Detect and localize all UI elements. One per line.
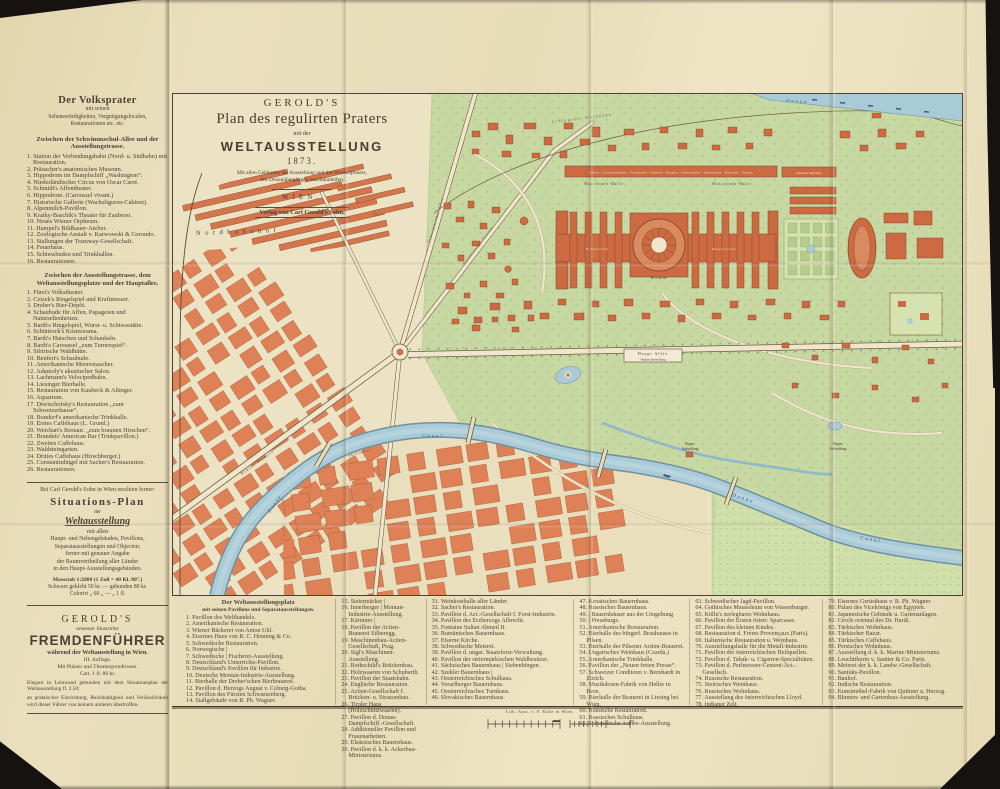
list-item: 1. Station der Verbindungsbahn (Nord- u.…	[27, 154, 168, 167]
building	[788, 265, 797, 275]
building	[528, 315, 534, 321]
building	[696, 299, 704, 305]
list-item: 16. Restaurationen.	[27, 259, 168, 266]
list-item: 27. Pavillon d. Donau-Dampfschiff.-Gesel…	[341, 715, 420, 728]
building	[532, 476, 551, 495]
building	[801, 223, 810, 233]
building	[842, 343, 850, 348]
building	[516, 568, 535, 587]
building	[492, 317, 498, 322]
title-caption-1: Mit allen Gebäuden der Ausstellung und d…	[186, 170, 418, 177]
sidebar-text-column: Der Volksprater mit seinen Sehenswürdigk…	[27, 95, 168, 714]
list-item: 29. Elsässisches Bauernhaus.	[341, 740, 420, 746]
building	[473, 485, 500, 506]
building	[784, 313, 791, 319]
building	[456, 217, 464, 222]
building	[496, 293, 504, 298]
building	[490, 303, 500, 310]
building	[801, 237, 810, 247]
building	[766, 299, 775, 305]
building	[508, 315, 515, 321]
japanese-garden	[890, 293, 942, 335]
building	[838, 301, 845, 307]
building	[513, 546, 536, 566]
building	[802, 301, 810, 308]
section1-list: 1. Station der Verbindungsbahn (Nord- u.…	[27, 154, 168, 265]
guide-sub: neuester illustrirter	[27, 626, 168, 632]
photo-stage: Donau Italien · Grossbritannien · Frankr…	[0, 0, 1000, 789]
ad-weltausstellung: Weltausstellung	[27, 516, 168, 527]
building	[592, 301, 599, 307]
building	[812, 355, 818, 360]
building	[354, 505, 373, 524]
title-divider	[272, 189, 332, 190]
building	[427, 582, 446, 596]
list-item: 26. Restaurationen.	[27, 467, 168, 474]
photo-edge-right-lower	[995, 380, 1000, 740]
building	[328, 531, 347, 550]
building	[568, 515, 587, 534]
section1-title: Zwischen der Schwimmschul-Allee und der …	[27, 136, 168, 151]
hauptallee-label-box: Haupt Allee Wagen Aufstellung	[624, 349, 682, 362]
list-item: mit allen	[27, 529, 168, 537]
building	[608, 145, 616, 151]
building	[660, 301, 670, 307]
legend-header-1: Der Weltausstellungsplatz	[186, 599, 330, 607]
volksprater-sub2: Sehenswürdigkeiten, Vergnügungslocalen,	[27, 114, 168, 122]
building	[813, 237, 822, 247]
building	[469, 464, 488, 483]
building	[295, 513, 322, 534]
building	[546, 562, 573, 583]
building	[502, 151, 511, 157]
building	[801, 251, 810, 261]
building	[752, 212, 759, 288]
title-year: 1873.	[186, 156, 418, 166]
list-item: 4. Schaubude für Affen, Papageien und Na…	[27, 310, 168, 323]
building	[483, 550, 510, 571]
frankreich-label: Frankreich	[586, 247, 608, 251]
scale-bar-meter	[570, 720, 634, 729]
list-item: 30. Pavillon d. k. k. Ackerbau-Ministeri…	[341, 747, 420, 760]
legend-column-1: Der Weltausstellungsplatz mit seinen Pav…	[186, 599, 335, 705]
building	[450, 533, 473, 553]
building	[347, 460, 374, 481]
building	[506, 503, 525, 522]
list-item: 46. Slovakisches Bauernhaus.	[432, 695, 569, 701]
legend-column-3: 31. Weinkosthalle aller Länder.32. Sache…	[426, 599, 574, 705]
building	[472, 131, 480, 137]
building	[712, 145, 720, 150]
building	[605, 554, 624, 573]
list-item: 54. Ungarisches Weinhaus (Czarda.)	[579, 650, 684, 656]
building	[872, 385, 878, 390]
building	[424, 560, 447, 580]
machine-hall-countries-label: Italien · Grossbritannien · Frankreich ·…	[589, 170, 753, 174]
volksprater-title: Der Volksprater	[27, 95, 168, 106]
building	[565, 493, 588, 513]
building	[509, 523, 536, 544]
building	[524, 123, 536, 129]
building	[558, 299, 566, 305]
building	[474, 317, 482, 323]
building	[737, 212, 744, 288]
building	[813, 223, 822, 233]
legend-column-2: 15. Steiermärker |16. Innerberger | Mont…	[335, 599, 425, 705]
guide-para1: Elegant in Leinwand gebunden mit dem Sit…	[27, 680, 168, 693]
building	[788, 223, 797, 233]
building	[624, 129, 634, 135]
building	[826, 237, 835, 247]
map-title: Plan des regulirten Praters	[186, 111, 418, 128]
building	[792, 383, 798, 388]
weltausstellung-title: WELTAUSSTELLUNG	[186, 139, 418, 154]
building	[436, 446, 463, 467]
canal-label-1: Canal	[422, 434, 444, 440]
building	[896, 143, 906, 149]
building	[826, 223, 835, 233]
list-item: 18. Pavillon der Actien-Brauerei Silbere…	[341, 625, 420, 638]
section2-title: Zwischen der Ausstellungstrasse, dem Wel…	[27, 272, 168, 287]
building	[575, 558, 598, 578]
list-item: 16. Innerberger | Montan-Industrie-Ausst…	[341, 605, 420, 618]
building	[480, 223, 487, 229]
building	[928, 359, 934, 364]
list-item: 56. Pavillon der „Neuen freien Presse“.	[579, 663, 684, 669]
building	[878, 129, 886, 137]
building	[728, 127, 737, 133]
list-item: 68. Restauration d. Frères Provençaux (P…	[695, 631, 817, 637]
volksprater-sub1: mit seinen	[27, 106, 168, 114]
svg-text:Haupt Allee: Haupt Allee	[638, 351, 668, 356]
fremdenfuehrer-ad: GEROLD'S neuester illustrirter FREMDENFÜ…	[27, 605, 168, 715]
building	[608, 315, 616, 321]
building	[476, 507, 499, 527]
building	[598, 509, 625, 530]
building	[446, 283, 454, 289]
building	[331, 551, 358, 572]
building	[801, 265, 810, 275]
list-item: 21. Rothschild's Brückenbau.	[341, 663, 420, 669]
list-item: 52. Bierhalle des bürgerl. Brauhauses in…	[579, 631, 684, 644]
list-item: in den Haupt-Ausstellungsgebäuden.	[27, 566, 168, 574]
building	[452, 319, 459, 324]
svg-text:Wagen-: Wagen-	[684, 442, 696, 446]
building	[542, 542, 561, 561]
building	[466, 442, 489, 462]
building	[788, 237, 797, 247]
section2-list: 1. Fürst's Volkstheater.2. Czizek's Ring…	[27, 290, 168, 473]
list-item: 94. Blumen- und Gartenbau-Ausstellung.	[828, 695, 959, 701]
building	[592, 127, 600, 137]
scale-bar-klafter	[488, 719, 560, 729]
list-item: 20. Sigl's Maschinen-Ausstellung.	[341, 650, 420, 663]
building	[826, 265, 835, 275]
building	[384, 499, 411, 520]
svg-text:Wagen-: Wagen-	[832, 442, 844, 446]
building	[840, 131, 850, 138]
building	[782, 343, 789, 348]
situationsplan-ad: Bei Carl Gerold's Sohn in Wien erschien …	[27, 482, 168, 597]
building	[420, 537, 447, 558]
building	[912, 397, 919, 402]
rotunde-label: Rotunde	[650, 275, 667, 280]
building	[492, 207, 500, 213]
list-item: 17. Diwischofsky's Restauration „zum Sch…	[27, 402, 168, 415]
building	[512, 327, 519, 332]
list-item: Haupt- und Nebengebäuden, Pavillons,	[27, 536, 168, 544]
building	[391, 543, 410, 562]
building	[572, 536, 599, 557]
building	[788, 251, 797, 261]
building	[472, 149, 479, 154]
ad-price-2: Colorirt „ 60 „ — „ 1 fl.	[27, 591, 168, 597]
list-item: 28. Additioneller Pavillon und Frauenarb…	[341, 727, 420, 740]
list-item: 57. Schweizer Conditorei v. Bernhardt in…	[579, 670, 684, 683]
ad-price-1: Schwarz geklebt 50 kr. — gebunden 80 kr.	[27, 584, 168, 590]
legend-items-1: 1. Pavillon des Welthandels.2. Amerikani…	[186, 615, 330, 705]
building	[860, 145, 868, 151]
building	[872, 357, 878, 363]
building	[544, 137, 552, 145]
legend-column-5: 63. Schwedischer Jagd-Pavillon.64. Gothi…	[689, 599, 822, 705]
building	[660, 127, 668, 133]
list-item: 19. Maschinenbau-Actien-Gesellschaft, Pr…	[341, 638, 420, 651]
building	[406, 452, 425, 471]
building	[458, 307, 467, 314]
list-item: 14. Stallgebäude von R. Ph. Wagner.	[186, 698, 330, 704]
building	[480, 281, 487, 287]
building	[570, 212, 577, 288]
building	[468, 201, 474, 208]
building	[813, 251, 822, 261]
list-item: 87. Ausstellung d. k. k. Marine-Minister…	[828, 650, 959, 656]
building	[746, 143, 753, 149]
guide-para2: an praktischer Einrichtung, Reichhaltigk…	[27, 695, 168, 708]
title-city: WIEN.	[186, 193, 418, 201]
list-item: 58. Musikdosen-Fabrik von Heller in Bern…	[579, 682, 684, 695]
building	[486, 572, 509, 592]
building	[524, 301, 532, 309]
ad-der: der	[27, 509, 168, 515]
ad-scale: Massstab 1:2880 (1 Zoll = 40 Kl. 80°.)	[27, 577, 168, 583]
map-title-block: GEROLD'S Plan des regulirten Praters mit…	[186, 97, 418, 219]
building	[488, 253, 495, 259]
ad-lines: mit allenHaupt- und Nebengebäuden, Pavil…	[27, 529, 168, 574]
building	[302, 557, 321, 576]
guide-edition: III. Auflage.	[27, 657, 168, 663]
svg-text:Aufstellung: Aufstellung	[682, 447, 699, 451]
building	[712, 313, 721, 319]
building	[442, 243, 449, 248]
svg-text:Wagen Aufstellung: Wagen Aufstellung	[640, 358, 666, 362]
list-item: 71. Pavillon der österreichischen Heilqu…	[695, 650, 817, 656]
building	[678, 143, 687, 149]
list-item: 77. Ausstellung des österreichischen Llo…	[695, 695, 817, 701]
building	[324, 509, 347, 529]
building	[872, 113, 881, 118]
building	[942, 383, 948, 388]
building	[410, 472, 437, 493]
building	[826, 251, 835, 261]
maschinen-halle-label-right: Maschinen-Halle	[712, 182, 752, 186]
oesterreich-label: Oesterreich	[712, 247, 736, 251]
building	[504, 239, 510, 245]
list-item: der Raumvertheilung aller Länder	[27, 559, 168, 567]
building	[624, 299, 633, 306]
building	[642, 313, 650, 319]
building	[902, 345, 909, 350]
building	[464, 293, 470, 298]
building	[832, 393, 839, 398]
building	[615, 212, 622, 288]
building	[564, 123, 573, 129]
building	[443, 491, 462, 510]
guide-sub3: Mit Plänen und Theatergrundrissen.	[27, 664, 168, 670]
situationsplan-title: Situations-Plan	[27, 496, 168, 508]
exhibition-legend: Der Weltausstellungsplatz mit seinen Pav…	[186, 599, 964, 705]
building	[535, 497, 562, 518]
building	[730, 301, 738, 308]
list-item: Separatausstellungen und Objecten;	[27, 544, 168, 552]
building	[574, 313, 584, 320]
building	[488, 123, 498, 130]
title-caption-2: den Donauübergängen und Bahnhöfen.	[186, 177, 418, 184]
guide-publisher: GEROLD'S	[27, 614, 168, 625]
volksprater-sub3: Restaurationen etc. etc.	[27, 121, 168, 129]
building	[692, 212, 699, 288]
list-item: 25. Actien-Gesellschaft f. Brücken- u. S…	[341, 689, 420, 702]
building	[387, 521, 410, 541]
building	[512, 279, 518, 285]
ad-intro: Bei Carl Gerold's Sohn in Wien erschien …	[27, 487, 168, 493]
rotunde-building	[633, 219, 685, 271]
svg-text:Aufstellung: Aufstellung	[830, 447, 847, 451]
building	[446, 511, 473, 532]
building	[820, 315, 829, 320]
building	[560, 151, 567, 158]
list-item: 73. Pavillon d. Perlmooser-Cement-Act.-G…	[695, 663, 817, 676]
building	[696, 129, 703, 137]
fremdenfuehrer-title: FREMDENFÜHRER	[27, 633, 168, 648]
building	[642, 143, 649, 150]
building	[916, 131, 924, 137]
building	[298, 535, 321, 555]
praterstern-junction	[392, 344, 408, 360]
list-item: 64. Gothisches Mausoleum von Wasserburge…	[695, 605, 817, 611]
building	[506, 135, 513, 144]
building	[748, 315, 756, 320]
building	[440, 468, 463, 488]
maschinen-halle-label-left: Maschinen-Halle	[584, 182, 624, 186]
guide-price: Cart. 1 fl. 80 kr.	[27, 671, 168, 677]
building	[417, 517, 436, 536]
building	[413, 495, 436, 515]
list-item: 24. Englische Restauration.	[341, 682, 420, 688]
building	[351, 482, 374, 502]
building	[394, 564, 421, 585]
list-item: ferner mit genauer Angabe	[27, 551, 168, 559]
legend-column-6: 79. Eisernes Gerüsthaus v. R. Ph. Wagner…	[822, 599, 964, 705]
building	[453, 556, 472, 575]
building	[813, 265, 822, 275]
building	[532, 153, 540, 158]
publisher-name: GEROLD'S	[186, 97, 418, 109]
building	[472, 325, 480, 331]
building	[321, 486, 348, 507]
building	[539, 519, 562, 539]
scale-bars	[484, 714, 636, 734]
title-publisher-imprint: Verlag von Carl Gerold's Sohn.	[255, 207, 348, 218]
deutsche-agricultur-label: Deutsche Agricultur	[796, 171, 821, 175]
title-connector: mit der	[186, 131, 418, 137]
building	[580, 139, 590, 145]
legend-column-4: 47. Kroatisches Bauernhaus.48. Russische…	[573, 599, 689, 705]
building	[678, 315, 685, 322]
building	[444, 203, 451, 209]
legend-header-2: mit seinen Pavillons und Separatausstell…	[186, 607, 330, 613]
guide-sub2: während der Weltausstellung in Wien.	[27, 649, 168, 656]
building	[291, 492, 310, 511]
building	[764, 129, 772, 136]
building	[540, 313, 549, 319]
building	[499, 458, 526, 479]
